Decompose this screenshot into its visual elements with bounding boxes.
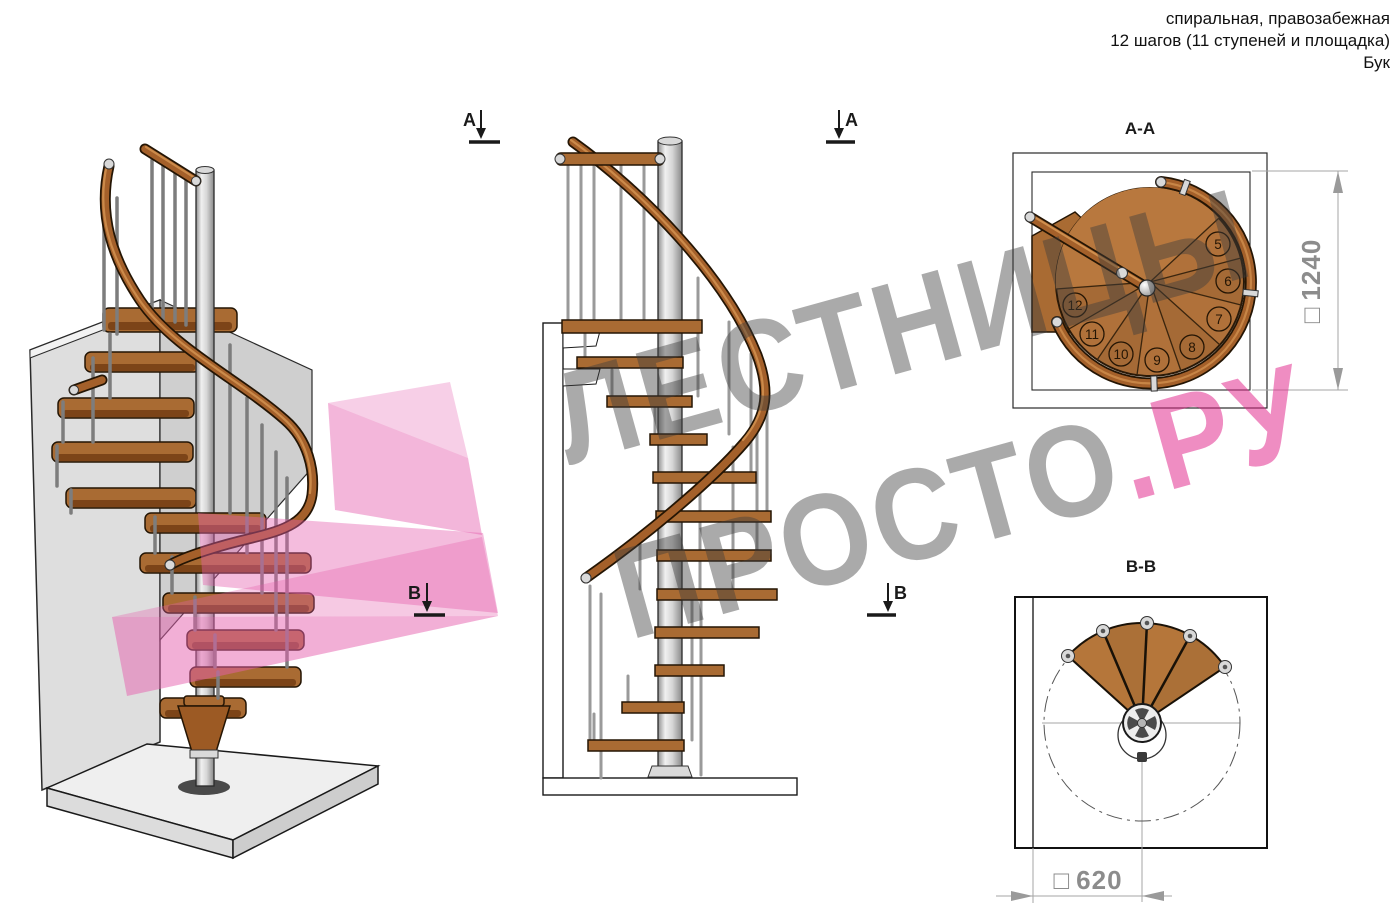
section-marker-b-left: B bbox=[408, 583, 445, 615]
title-block: спиральная, правозабежная 12 шагов (11 с… bbox=[1110, 8, 1390, 74]
svg-text:A: A bbox=[463, 110, 476, 130]
drawing-sheet: A-A bbox=[0, 0, 1400, 911]
section-marker-b-right: B bbox=[867, 583, 907, 615]
markers-layer: A A B B bbox=[0, 0, 1400, 911]
section-marker-a-left: A bbox=[463, 110, 500, 142]
stair-config: 12 шагов (11 ступеней и площадка) bbox=[1110, 30, 1390, 52]
svg-text:B: B bbox=[894, 583, 907, 603]
svg-text:B: B bbox=[408, 583, 421, 603]
stair-material: Бук bbox=[1110, 52, 1390, 74]
section-marker-a-right: A bbox=[826, 110, 858, 142]
svg-text:A: A bbox=[845, 110, 858, 130]
stair-type: спиральная, правозабежная bbox=[1110, 8, 1390, 30]
